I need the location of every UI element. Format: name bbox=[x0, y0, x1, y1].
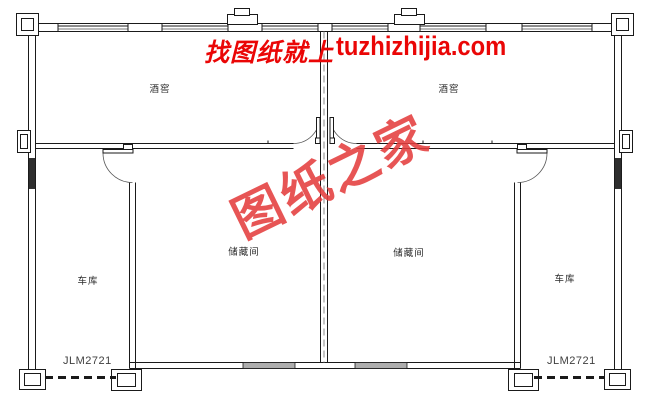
header-watermark-domain: tuzhizhijia.com bbox=[336, 31, 506, 62]
window-segment bbox=[522, 24, 592, 32]
window-segment bbox=[262, 24, 318, 32]
top-wall-windows bbox=[58, 24, 592, 32]
room-label-wine-cellar-right: 酒窖 bbox=[438, 81, 459, 95]
door-garage-left bbox=[103, 145, 133, 183]
storage-window-right bbox=[355, 363, 407, 369]
room-label-garage-right: 车库 bbox=[554, 271, 575, 285]
garage-door-model-right: JLM2721 bbox=[547, 355, 596, 367]
room-label-wine-cellar-left: 酒窖 bbox=[149, 81, 170, 95]
header-watermark-prefix: 找图纸就上 bbox=[204, 33, 334, 69]
room-label-storage-right: 储藏间 bbox=[393, 245, 425, 259]
room-label-storage-left: 储藏间 bbox=[228, 244, 260, 258]
room-label-garage-left: 车库 bbox=[77, 273, 98, 287]
door-wine-cellar-left bbox=[294, 118, 321, 144]
window-segment bbox=[58, 24, 128, 32]
bottom-storage-windows bbox=[243, 363, 407, 369]
storage-window-left bbox=[243, 363, 295, 369]
door-garage-right bbox=[517, 145, 547, 183]
floor-plan-page: 找图纸就上 tuzhizhijia.com 图纸之家 酒窖 酒窖 储藏间 储藏间… bbox=[0, 0, 650, 411]
right-wall-window bbox=[615, 159, 622, 189]
left-wall-window bbox=[29, 159, 36, 189]
garage-door-model-left: JLM2721 bbox=[63, 355, 112, 367]
window-segment bbox=[162, 24, 228, 32]
